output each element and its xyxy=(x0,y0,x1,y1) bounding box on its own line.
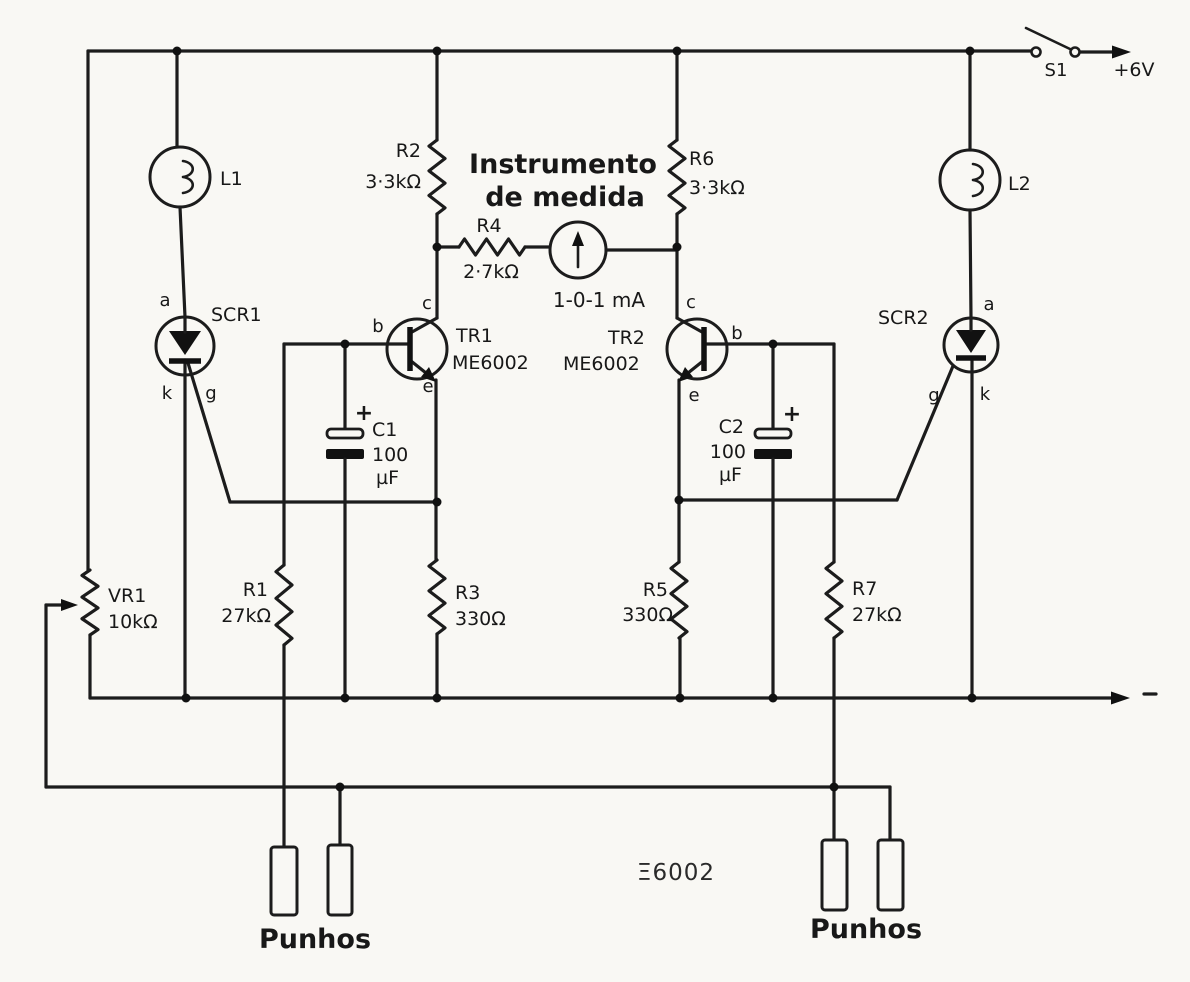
ground-arrow-icon xyxy=(1111,692,1130,705)
meter-arrow-icon xyxy=(572,231,584,246)
vr1-branch-wires xyxy=(46,51,90,787)
tr2-base-pin-label: b xyxy=(731,323,742,344)
switch-lever xyxy=(1026,28,1070,49)
resistor-r2-symbol xyxy=(429,140,445,214)
c2-unit-label: µF xyxy=(719,464,742,486)
punhos-rail xyxy=(46,787,890,845)
electrode-left-1 xyxy=(271,847,297,915)
lamp-l2-label: L2 xyxy=(1008,173,1031,195)
tr2-emitter-pin-label: e xyxy=(688,385,699,406)
scr1-triangle-icon xyxy=(169,331,201,355)
electrode-left-2 xyxy=(328,845,352,915)
capacitor-c1-symbol xyxy=(326,344,364,698)
resistor-r3-symbol xyxy=(429,560,445,634)
c2-polarity-label: + xyxy=(783,402,801,427)
r2-value-label: 3·3kΩ xyxy=(365,171,421,193)
scr2-triangle-icon xyxy=(956,330,986,353)
vr1-name-label: VR1 xyxy=(108,585,146,607)
stray-print-text: Ξ6002 xyxy=(637,860,715,886)
tr2-collector-pin-label: c xyxy=(686,292,696,313)
switch-contact-left xyxy=(1032,48,1041,57)
scr2-cathode-pin-label: k xyxy=(980,384,991,405)
tr2-name-label: TR2 xyxy=(607,327,645,349)
punhos-left-label: Punhos xyxy=(259,924,371,955)
lamp-l1-symbol xyxy=(150,147,210,207)
r4-value-label: 2·7kΩ xyxy=(463,261,519,283)
scr1-cathode-pin-label: k xyxy=(162,383,173,404)
schematic-page: S1 +6V L1 L2 SCR1 a k g SCR2 a k g R2 3·… xyxy=(0,0,1190,982)
tr1-collector-pin-label: c xyxy=(422,293,432,314)
switch-s1-label: S1 xyxy=(1045,60,1068,81)
resistor-r5-symbol xyxy=(671,562,687,638)
punhos-right-label: Punhos xyxy=(810,914,922,945)
meter-caption-line2: de medida xyxy=(485,182,645,213)
c1-value-label: 100 xyxy=(372,444,408,466)
scr2-gate-pin-label: g xyxy=(928,385,939,406)
scr2-anode-pin-label: a xyxy=(983,294,994,315)
r2-name-label: R2 xyxy=(396,140,421,162)
ground-rail xyxy=(90,692,1156,705)
lamp-l2-symbol xyxy=(940,150,1000,210)
tr1-part-label: ME6002 xyxy=(452,352,529,374)
scr2-name-label: SCR2 xyxy=(878,307,929,329)
r5-value-label: 330Ω xyxy=(622,604,673,626)
capacitor-c2-symbol xyxy=(754,344,792,698)
r3-value-label: 330Ω xyxy=(455,608,506,630)
resistor-r1-symbol xyxy=(276,565,292,645)
potentiometer-vr1-symbol xyxy=(82,570,98,635)
resistor-r4-symbol xyxy=(459,239,525,255)
tr1-name-label: TR1 xyxy=(455,325,493,347)
tr1-emitter-pin-label: e xyxy=(422,376,433,397)
supply-voltage-label: +6V xyxy=(1113,59,1154,81)
r1-name-label: R1 xyxy=(243,579,268,601)
lamp-filament-icon xyxy=(973,164,983,196)
r5-name-label: R5 xyxy=(643,579,668,601)
c1-polarity-label: + xyxy=(355,401,373,426)
meter-caption-line1: Instrumento xyxy=(469,149,657,180)
electrode-right-1 xyxy=(822,840,847,910)
r6-value-label: 3·3kΩ xyxy=(689,177,745,199)
vr1-value-label: 10kΩ xyxy=(108,611,158,633)
c2-name-label: C2 xyxy=(719,416,744,438)
supply-arrow-icon xyxy=(1112,46,1131,59)
resistor-r7-symbol xyxy=(826,562,842,638)
r3-name-label: R3 xyxy=(455,582,480,604)
r7-value-label: 27kΩ xyxy=(852,604,902,626)
lamp-l1-label: L1 xyxy=(220,168,243,190)
meter-range-label: 1-0-1 mA xyxy=(553,288,645,312)
scr1-name-label: SCR1 xyxy=(211,304,262,326)
r6-name-label: R6 xyxy=(689,148,714,170)
resistor-r6-symbol xyxy=(669,140,685,214)
tr2-part-label: ME6002 xyxy=(563,353,640,375)
meter-symbol xyxy=(550,222,606,278)
scr1-gate-pin-label: g xyxy=(205,383,216,404)
r7-name-label: R7 xyxy=(852,578,877,600)
switch-contact-right xyxy=(1071,48,1080,57)
circuit-schematic: S1 +6V L1 L2 SCR1 a k g SCR2 a k g R2 3·… xyxy=(0,0,1190,982)
c1-name-label: C1 xyxy=(372,419,397,441)
lamp-filament-icon xyxy=(183,161,193,193)
l2-scr2-branch-wires xyxy=(970,51,972,698)
r1-value-label: 27kΩ xyxy=(221,605,271,627)
switch-s1-symbol xyxy=(1026,28,1131,59)
scr1-anode-pin-label: a xyxy=(159,290,170,311)
electrode-right-2 xyxy=(878,840,903,910)
c1-unit-label: µF xyxy=(376,467,399,489)
tr1-base-pin-label: b xyxy=(372,316,383,337)
r4-name-label: R4 xyxy=(476,215,501,237)
vr1-wiper-arrow-icon xyxy=(61,599,78,611)
c2-value-label: 100 xyxy=(710,441,746,463)
